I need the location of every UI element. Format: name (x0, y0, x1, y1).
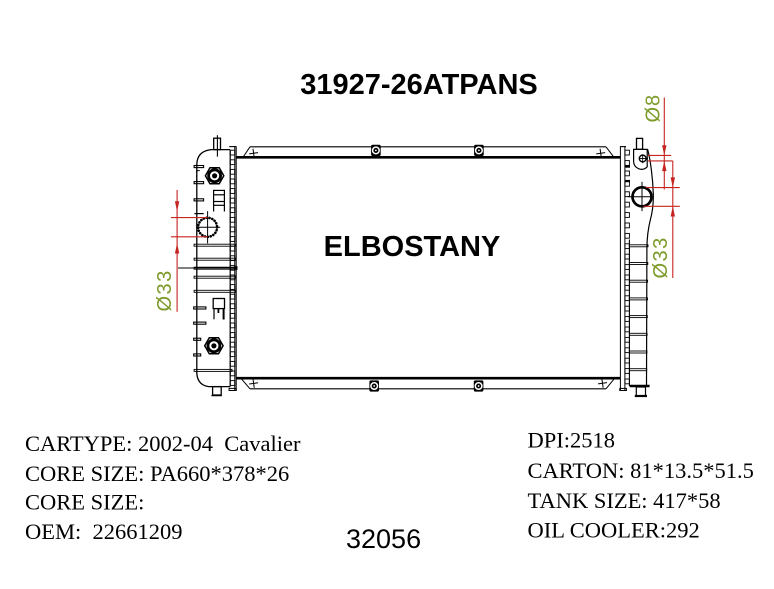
svg-text:OIL COOLER:292: OIL COOLER:292 (528, 518, 700, 543)
svg-text:CORE SIZE:: CORE SIZE: (25, 490, 144, 515)
svg-text:TANK SIZE: 417*58: TANK SIZE: 417*58 (528, 488, 721, 513)
svg-text:32056: 32056 (346, 524, 421, 554)
svg-text:Ø33: Ø33 (154, 269, 176, 311)
svg-text:Ø33: Ø33 (650, 236, 672, 278)
svg-text:Ø8: Ø8 (643, 94, 665, 123)
svg-text:ELBOSTANY: ELBOSTANY (324, 231, 501, 263)
svg-text:31927-26ATPANS: 31927-26ATPANS (300, 69, 537, 101)
svg-text:CORE SIZE: PA660*378*26: CORE SIZE: PA660*378*26 (25, 461, 289, 486)
svg-text:CARTON: 81*13.5*51.5: CARTON: 81*13.5*51.5 (528, 458, 754, 483)
svg-text:CARTYPE: 2002-04 Cavalier: CARTYPE: 2002-04 Cavalier (25, 431, 301, 456)
svg-text:OEM: 22661209: OEM: 22661209 (25, 519, 183, 544)
svg-text:DPI:2518: DPI:2518 (528, 427, 616, 452)
